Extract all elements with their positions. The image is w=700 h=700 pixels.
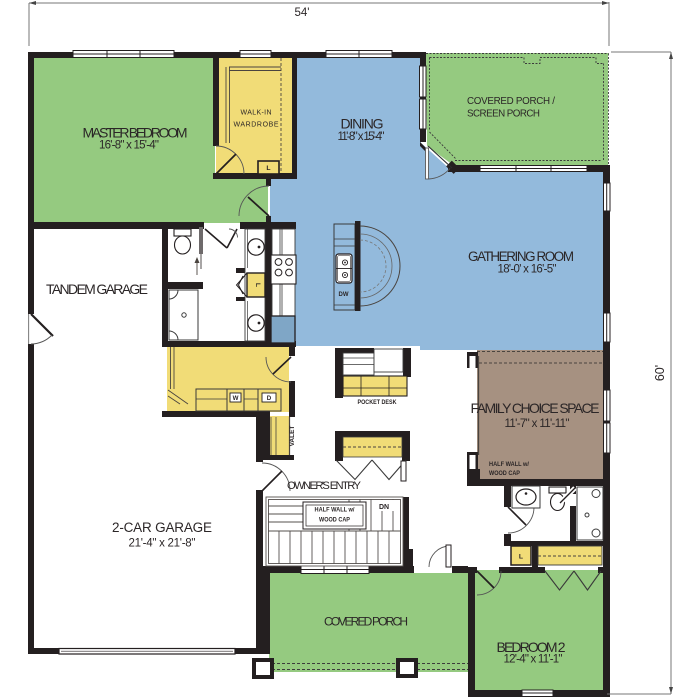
svg-text:DW: DW — [339, 292, 349, 298]
svg-text:WARDROBE: WARDROBE — [234, 122, 279, 129]
svg-text:2-CAR GARAGE: 2-CAR GARAGE — [112, 520, 212, 535]
svg-text:16'-8" x 15'-4": 16'-8" x 15'-4" — [99, 140, 159, 152]
svg-text:TANDEM GARAGE: TANDEM GARAGE — [46, 281, 148, 297]
svg-text:18'-0' x 16'-5": 18'-0' x 16'-5" — [498, 264, 557, 276]
svg-text:COVERED PORCH /: COVERED PORCH / — [467, 96, 555, 107]
svg-text:FAMILY CHOICE SPACE: FAMILY CHOICE SPACE — [471, 400, 600, 416]
svg-text:11'-7" x 11'-11": 11'-7" x 11'-11" — [505, 418, 570, 430]
svg-text:11'-8" x 15'-4": 11'-8" x 15'-4" — [338, 131, 385, 143]
svg-text:COVERED PORCH: COVERED PORCH — [324, 615, 408, 629]
svg-text:VALET: VALET — [289, 426, 296, 447]
svg-text:WOOD CAP: WOOD CAP — [319, 517, 350, 524]
svg-text:54': 54' — [295, 7, 310, 19]
svg-text:SCREEN PORCH: SCREEN PORCH — [467, 109, 540, 120]
svg-text:60': 60' — [653, 365, 667, 381]
svg-text:W: W — [233, 395, 239, 402]
svg-text:HALF WALL w/: HALF WALL w/ — [489, 461, 529, 468]
svg-text:OWNER'S ENTRY: OWNER'S ENTRY — [287, 480, 362, 492]
svg-text:WALK-IN: WALK-IN — [241, 110, 272, 117]
svg-text:12'-4" x 11'-1": 12'-4" x 11'-1" — [504, 654, 563, 666]
svg-text:MASTER BEDROOM: MASTER BEDROOM — [83, 125, 188, 141]
svg-text:L: L — [519, 554, 523, 561]
svg-text:21'-4" x 21'-8": 21'-4" x 21'-8" — [129, 538, 196, 550]
svg-text:DINING: DINING — [341, 116, 384, 132]
svg-text:DN: DN — [379, 504, 389, 511]
svg-text:D: D — [267, 395, 272, 402]
svg-text:L: L — [254, 283, 261, 287]
svg-text:POCKET DESK: POCKET DESK — [358, 399, 397, 406]
svg-text:L: L — [266, 165, 270, 172]
svg-text:WOOD CAP: WOOD CAP — [489, 470, 520, 477]
svg-text:GATHERING ROOM: GATHERING ROOM — [468, 249, 574, 264]
svg-text:HALF WALL w/: HALF WALL w/ — [315, 507, 355, 514]
